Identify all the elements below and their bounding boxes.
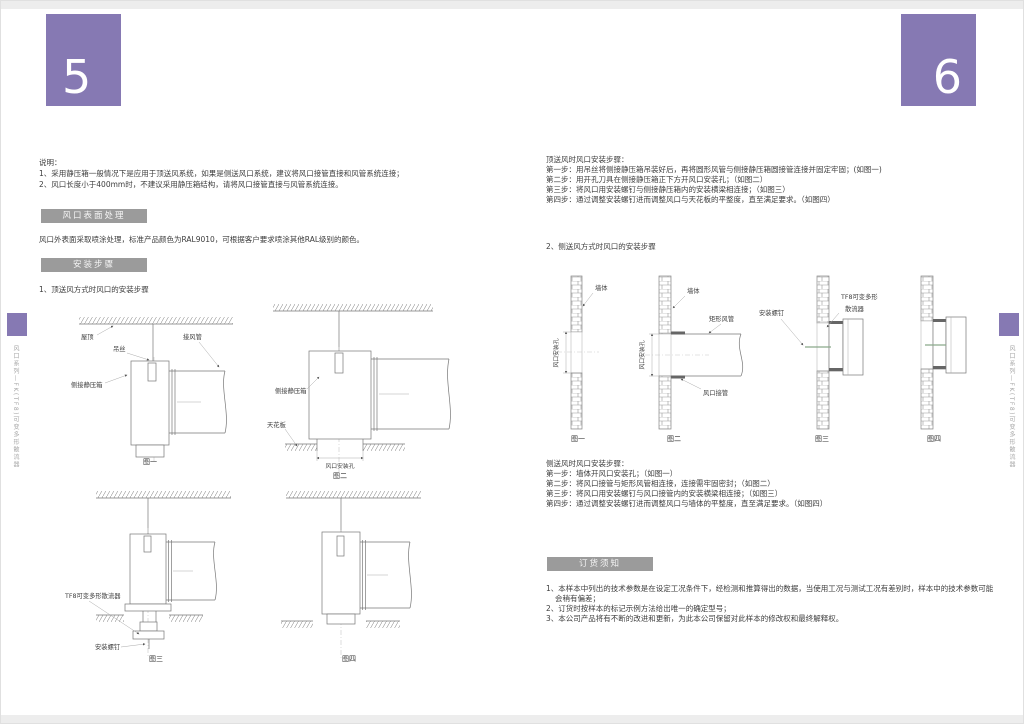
diffuser-neck (140, 622, 157, 631)
figure-caption: 图一 (571, 435, 585, 443)
surface-body: 风口外表面采取喷涂处理，标准产品颜色为RAL9010，可根据客户要求喷涂其他RA… (39, 234, 364, 245)
figure-caption: 图三 (149, 655, 163, 663)
hanger-bracket (144, 536, 151, 552)
ordering-item-3: 3、本公司产品将有不断的改进和更新，为此本公司保留对此样本的修改权和最终解释权。 (546, 614, 1000, 624)
top-step-4: 第四步：通过调整安装螺钉进而调整风口与天花板的平整度，直至满足要求。（如图四） (546, 195, 882, 205)
page-number-right-text: 6 (933, 50, 962, 104)
side-steps-block: 侧送风时风口安装步骤： 第一步：墙体开风口安装孔；（如图一） 第二步：将风口接管… (546, 459, 827, 509)
side-tab-text-left: 风口系列—FK(TF8)可变多形散流器 (11, 345, 20, 469)
leader-ceiling (285, 429, 297, 446)
notes-item-1: 1、采用静压箱一般情况下是应用于顶送风系统，如果是侧送风口系统，建议将风口接管直… (39, 168, 404, 179)
top-step-3: 第三步：将风口用安装螺钉与侧接静压箱内的安装横梁相连接；（如图三） (546, 185, 882, 195)
duct-break-line (224, 371, 227, 433)
label-diffuser: TF8可变多形散流器 (64, 591, 121, 600)
figure-caption: 图二 (667, 435, 681, 443)
wall-lower (659, 376, 671, 429)
outlet-neck (136, 445, 164, 457)
outlet-neck (327, 614, 355, 624)
leader-screws (121, 644, 145, 647)
notes-item-2: 2、风口长度小于400mm时，不建议采用静压箱结构，请将风口接管直接与风管系统连… (39, 179, 404, 190)
connecting-duct (166, 540, 216, 602)
connecting-duct (360, 540, 411, 610)
label-roof: 屋顶 (81, 333, 94, 341)
label-diffuser-line2: 散流器 (845, 304, 865, 313)
install-subtitle: 1、顶送风方式时风口的安装步骤 (39, 284, 149, 295)
hanger-bracket (337, 536, 344, 556)
section-header-ordering: 订货须知 (547, 557, 653, 571)
diffuser-face (946, 317, 966, 373)
page-number-right: 6 (901, 14, 976, 106)
label-plenum: 侧接静压箱 (275, 386, 306, 395)
figure-caption: 图四 (927, 435, 941, 443)
figure-caption: 图四 (342, 655, 356, 663)
page-number-left: 5 (46, 14, 121, 106)
wall-upper (571, 276, 582, 332)
top-steps-block: 顶送风时风口安装步骤： 第一步：用吊丝将侧接静压箱吊装好后，再将圆形风管与侧接静… (546, 155, 882, 205)
ceiling-hatch-left (285, 444, 317, 451)
side-steps-title: 侧送风时风口安装步骤： (546, 459, 827, 469)
side-step-2: 第二步：将风口接管与矩形风管相连接，连接需牢固密封；（如图二） (546, 479, 827, 489)
label-outlet-pipe: 风口接管 (703, 388, 728, 397)
wall-upper (659, 276, 671, 334)
label-wall: 墙体 (595, 283, 608, 292)
duct-break-line (448, 359, 451, 429)
roof-hatch (96, 491, 231, 498)
label-install-hole: 风口安装孔 (638, 340, 646, 369)
label-ceiling: 天花板 (267, 420, 287, 429)
diffuser-neck (829, 323, 843, 371)
leader-rect-duct (709, 324, 721, 333)
label-screws: 安装螺钉 (759, 308, 785, 317)
top-step-2: 第二步：用开孔刀具在侧接静压箱正下方开风口安装孔；（如图二） (546, 175, 882, 185)
figure-caption: 图二 (333, 472, 347, 480)
side-step-3: 第三步：将风口用安装螺钉与风口接管内的安装横梁相连接；（如图三） (546, 489, 827, 499)
leader-screws (781, 319, 803, 345)
label-wall: 墙体 (687, 286, 700, 295)
side-supply-subtitle: 2、侧送风方式时风口的安装步骤 (546, 241, 656, 252)
side-step-1: 第一步：墙体开风口安装孔；（如图一） (546, 469, 827, 479)
side-tab-square-left (7, 313, 27, 336)
duct-break-line (409, 542, 412, 608)
notes-block: 说明： 1、采用静压箱一般情况下是应用于顶送风系统，如果是侧送风口系统，建议将风… (39, 157, 404, 190)
page-number-left-text: 5 (62, 50, 91, 104)
leader-plenum (105, 375, 127, 383)
side-step-4: 第四步：通过调整安装螺钉进而调整风口与墙体的平整度，直至满足要求。（如图四） (546, 499, 827, 509)
label-duct: 接风管 (183, 332, 202, 341)
connecting-duct (169, 369, 226, 435)
roof-hatch (79, 317, 233, 324)
leader-wire (127, 353, 149, 360)
ceiling-hatch-right (363, 444, 405, 451)
leader-wall (583, 293, 593, 306)
duct-break-line (214, 542, 217, 600)
hanger-bracket (335, 353, 343, 373)
figure-top-supply-1: 屋顶 吊丝 接风管 侧接静压箱 图一 (61, 309, 241, 467)
ordering-item-1: 1、本样本中列出的技术参数是在设定工况条件下，经检测和推算得出的数据，当使用工况… (546, 584, 1000, 604)
ceiling-hatch-left (96, 615, 124, 622)
figure-top-supply-4: 图四 (274, 482, 464, 668)
hanger-bracket (148, 363, 156, 381)
ordering-list: 1、本样本中列出的技术参数是在设定工况条件下，经检测和推算得出的数据，当使用工况… (546, 584, 1000, 624)
ceiling-hatch-right (169, 615, 203, 622)
leader-outlet-pipe (681, 379, 701, 389)
wall-lower (921, 369, 933, 429)
label-plenum: 侧接静压箱 (71, 380, 102, 389)
ordering-item-2: 2、订货时按样本的标记示例方法给出唯一的确定型号； (546, 604, 1000, 614)
scan-edge-bottom (1, 715, 1023, 723)
figure-top-supply-2: 侧接静压箱 天花板 风口安装孔 图二 (259, 297, 474, 481)
top-step-1: 第一步：用吊丝将侧接静压箱吊装好后，再将圆形风管与侧接静压箱圆接管连接并固定牢固… (546, 165, 882, 175)
label-wire: 吊丝 (113, 344, 126, 353)
label-diffuser-line1: TF8可变多形 (840, 292, 878, 301)
catalog-spread: { "accent_color": "#8679b3", "header_gra… (0, 0, 1024, 724)
label-rect-duct: 矩形风管 (709, 314, 734, 323)
figure-caption: 图三 (815, 435, 829, 443)
diffuser-assembly (829, 319, 863, 375)
leader-wall (673, 296, 685, 308)
roof-hatch (273, 304, 433, 311)
box-bottom-plate (125, 604, 171, 611)
figure-side-supply-4: 图四 (899, 257, 1011, 449)
leader-duct (199, 342, 219, 367)
ceiling-hatch-left (281, 621, 313, 628)
ceiling-hatch-right (366, 621, 400, 628)
diffuser-face (133, 631, 164, 639)
label-install-hole: 风口安装孔 (552, 338, 560, 367)
leader-roof (97, 326, 113, 335)
label-screws: 安装螺钉 (95, 642, 121, 651)
wall-lower (571, 373, 582, 429)
duct-break-line (739, 334, 742, 376)
label-install-hole: 风口安装孔 (326, 462, 355, 470)
diffuser-face (843, 319, 863, 375)
top-steps-title: 顶送风时风口安装步骤： (546, 155, 882, 165)
roof-hatch (286, 491, 421, 498)
section-header-install: 安装步骤 (41, 258, 147, 272)
figure-caption: 图一 (143, 458, 157, 466)
wall-lower (817, 371, 829, 429)
scan-edge-top (1, 1, 1023, 9)
connecting-duct (371, 357, 450, 431)
figure-top-supply-3: TF8可变多形散流器 安装螺钉 图三 (59, 482, 249, 668)
figure-side-supply-3: TF8可变多形 散流器 安装螺钉 图三 (753, 257, 893, 449)
figure-side-supply-1: 风口安装孔 墙体 图一 (539, 257, 631, 449)
wall-upper (921, 276, 933, 321)
wall-opening (571, 332, 582, 373)
notes-title: 说明： (39, 157, 404, 168)
section-header-surface: 风口表面处理 (41, 209, 147, 223)
wall-upper (817, 276, 829, 323)
